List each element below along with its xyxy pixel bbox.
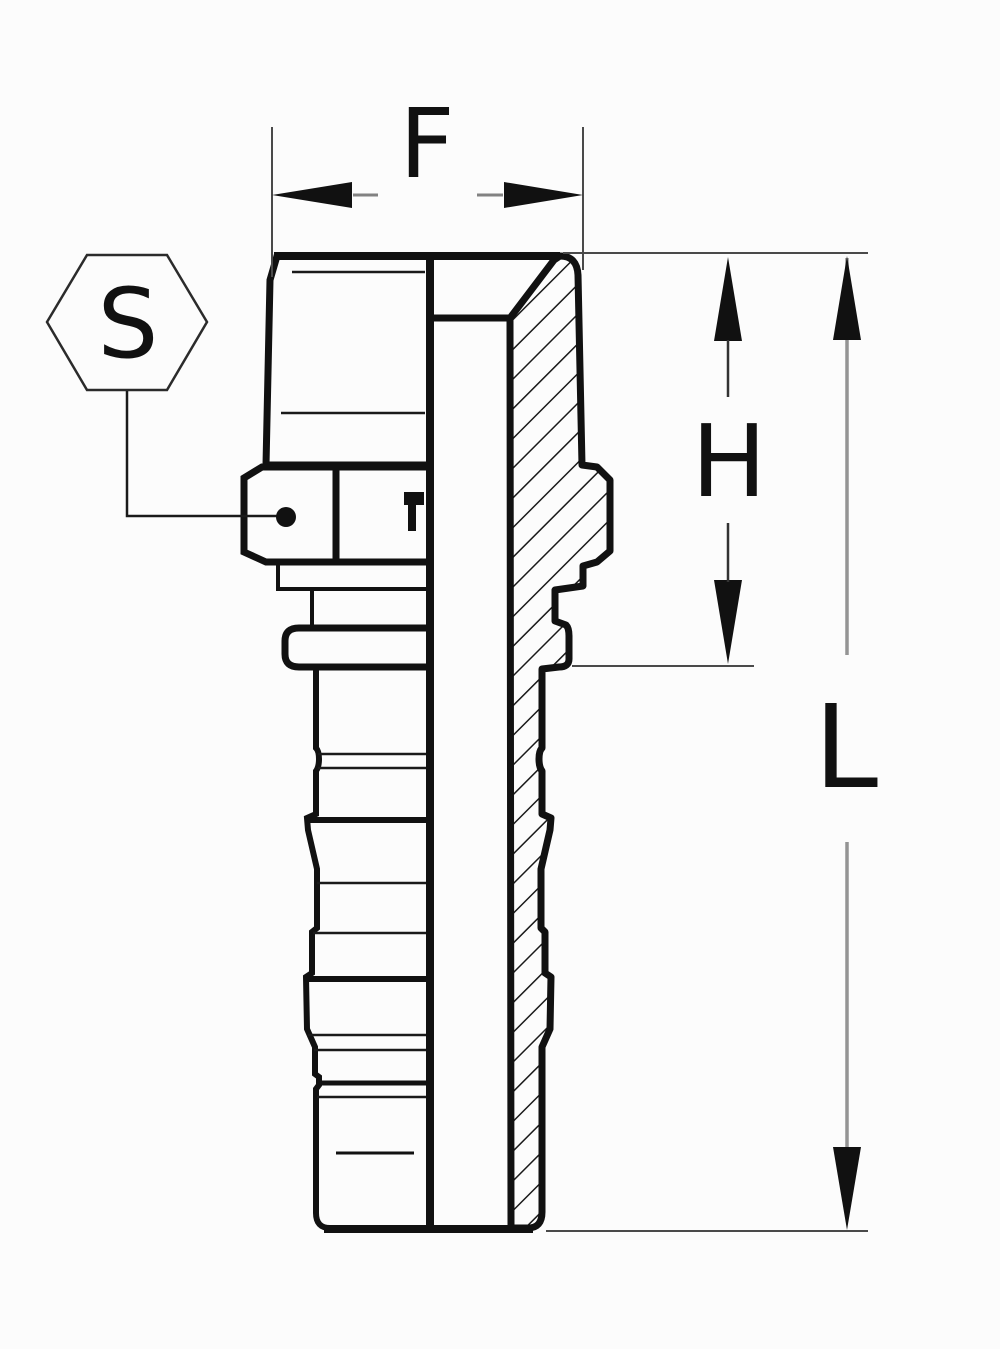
fitting-left-profile <box>244 256 430 1228</box>
thread-relief-mark <box>404 492 424 531</box>
fitting-section-drawing: F H L S <box>0 0 1000 1349</box>
flange <box>285 628 430 667</box>
leader-line <box>127 391 282 516</box>
dimension-h: H <box>563 253 868 666</box>
dim-label-l: L <box>814 681 878 815</box>
leader-dot <box>276 507 296 527</box>
h-arrow-down <box>714 580 742 664</box>
f-arrow-left <box>272 182 352 208</box>
drawing-canvas: F H L S <box>0 0 1000 1349</box>
dim-label-h: H <box>691 403 766 520</box>
f-arrow-right <box>504 182 583 208</box>
h-arrow-up <box>714 257 742 341</box>
dim-label-s: S <box>98 268 159 380</box>
male-thread-section <box>266 256 430 465</box>
dim-label-f: F <box>399 88 454 200</box>
barb-lines <box>307 754 426 1153</box>
l-arrow-up <box>833 256 861 340</box>
collar <box>278 562 430 589</box>
dimension-f: F <box>272 88 583 277</box>
wrench-size-callout: S <box>47 255 296 527</box>
l-arrow-down <box>833 1147 861 1230</box>
section-hatch-wall <box>510 256 610 1228</box>
neck-groove <box>312 589 430 628</box>
hose-barb-stem <box>306 667 430 1228</box>
